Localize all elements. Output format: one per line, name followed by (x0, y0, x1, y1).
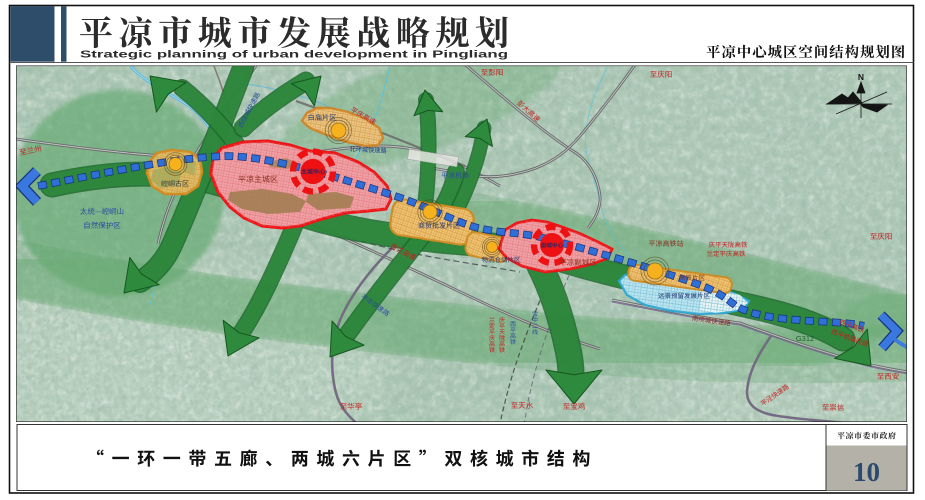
svg-text:10: 10 (853, 457, 880, 487)
svg-text:N: N (858, 72, 864, 82)
svg-text:Strategic planning of urban de: Strategic planning of urban development … (80, 50, 508, 61)
svg-text:G312: G312 (796, 334, 814, 343)
